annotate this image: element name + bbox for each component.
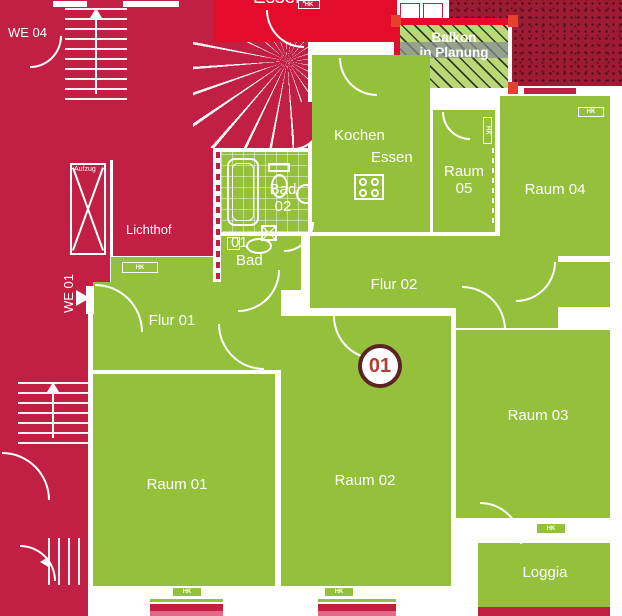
- window-sill-outer: [318, 611, 396, 616]
- we01-entry-arrow: [76, 290, 90, 306]
- window-slit: [122, 0, 180, 8]
- we01-label: WE 01: [60, 274, 77, 313]
- balcony-frame-top: [394, 18, 518, 25]
- floor-plan: HK Balkon in Planung Aufzug: [0, 0, 622, 616]
- raum04-label: Raum 04: [500, 181, 610, 198]
- balcony-post: [508, 82, 518, 94]
- unit-01-badge[interactable]: 01: [358, 344, 402, 388]
- raum02-label: Raum 02: [329, 472, 401, 489]
- radiator-box: HK: [536, 523, 566, 534]
- raum05-line1: Raum: [433, 163, 495, 180]
- loggia-label: Loggia: [509, 564, 581, 581]
- we04-label: WE 04: [8, 24, 47, 41]
- raum05-label: Raum 05: [433, 163, 495, 197]
- demolition-wall-mark: [216, 152, 220, 282]
- window-sill: [318, 604, 396, 611]
- window-sill-outer: [150, 611, 223, 616]
- bathtub-inner: [232, 163, 254, 221]
- stove-burner: [359, 189, 367, 197]
- balcony-post: [508, 15, 518, 27]
- flur02-label: Flur 02: [358, 276, 430, 293]
- stove-burner: [371, 178, 379, 186]
- stove-burner: [371, 189, 379, 197]
- neighbor-essen-label: Essen: [253, 0, 306, 6]
- stair-arrow-line: [95, 16, 97, 94]
- stove-burner: [359, 178, 367, 186]
- kochen-label-line2: Essen: [371, 149, 413, 166]
- room-raum04[interactable]: [500, 96, 610, 256]
- raum05-line2: 05: [433, 180, 495, 197]
- flur01-label: Flur 01: [136, 312, 208, 329]
- stair-arrow-line: [52, 390, 54, 438]
- stairwell-winder: [193, 42, 308, 148]
- lichthof-block: [113, 150, 213, 256]
- toilet-tank: [268, 163, 290, 172]
- radiator-box: HK: [122, 262, 158, 273]
- room-raum03[interactable]: [456, 330, 610, 518]
- lichthof-label: Lichthof: [126, 221, 172, 238]
- window-glass: [318, 599, 396, 602]
- raum03-label: Raum 03: [502, 407, 574, 424]
- raum01-label: Raum 01: [141, 476, 213, 493]
- bad02-line2: 02: [260, 198, 306, 215]
- stair-arrow-up: [47, 382, 59, 392]
- radiator-box: HK: [172, 587, 202, 597]
- radiator-box: HK: [324, 587, 354, 597]
- window-sill: [524, 88, 576, 94]
- existing-building-texture: [512, 0, 622, 86]
- radiator-box: HK: [483, 117, 492, 144]
- bad01-label-line1: 01: [231, 234, 248, 251]
- bad02-label: Bad 02: [260, 181, 306, 215]
- elevator-label: Aufzug: [74, 166, 96, 174]
- balcony-label-line1: Balkon: [400, 30, 508, 45]
- stove-icon: [354, 174, 384, 200]
- bad01-label-line2: Bad: [236, 252, 263, 269]
- window-slit: [52, 0, 88, 8]
- window-glass: [150, 599, 223, 602]
- stair-arrow-up: [90, 8, 102, 18]
- bad02-line1: Bad: [260, 181, 306, 198]
- existing-building-texture-2: [448, 0, 514, 20]
- window-sill: [150, 604, 223, 611]
- wall-notch: [558, 307, 610, 329]
- kochen-label-line1: Kochen: [334, 127, 385, 144]
- unit-01-badge-text: 01: [369, 355, 391, 378]
- loggia-outer-wall: [478, 607, 610, 616]
- radiator-box: HK: [578, 107, 604, 117]
